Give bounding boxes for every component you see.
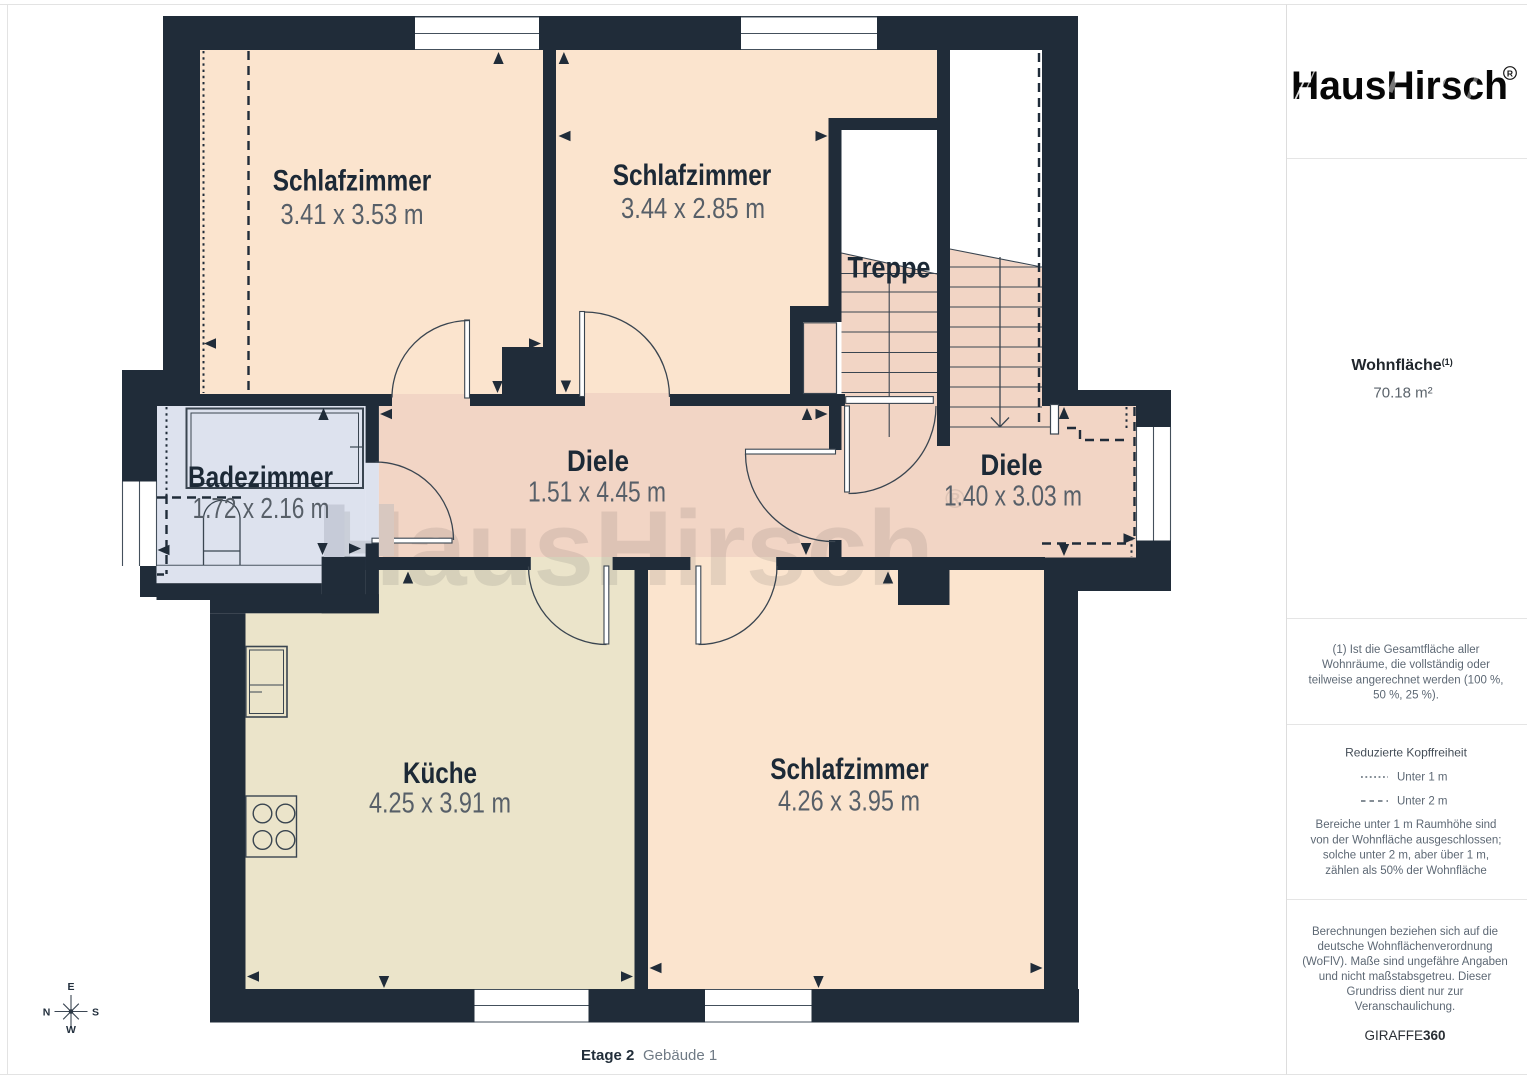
svg-text:Gebäude 1: Gebäude 1 bbox=[643, 1047, 717, 1064]
svg-text:50 %, 25 %).: 50 %, 25 %). bbox=[1373, 690, 1439, 702]
svg-text:und nicht maßstabsgetreu. Dies: und nicht maßstabsgetreu. Dieser bbox=[1319, 971, 1492, 983]
svg-text:W: W bbox=[66, 1024, 76, 1036]
svg-text:Reduzierte Kopffreiheit: Reduzierte Kopffreiheit bbox=[1345, 746, 1468, 760]
svg-text:1.40 x 3.03 m: 1.40 x 3.03 m bbox=[944, 481, 1082, 513]
svg-text:von der Wohnfläche ausgeschlos: von der Wohnfläche ausgeschlossen; bbox=[1311, 834, 1502, 846]
svg-text:Küche: Küche bbox=[403, 757, 477, 790]
svg-text:Veranschaulichung.: Veranschaulichung. bbox=[1355, 1001, 1455, 1013]
svg-text:Schlafzimmer: Schlafzimmer bbox=[273, 165, 432, 198]
svg-text:4.25 x 3.91 m: 4.25 x 3.91 m bbox=[369, 788, 511, 820]
svg-text:teilweise angerechnet werden (: teilweise angerechnet werden (100 %, bbox=[1309, 674, 1504, 686]
svg-text:N: N bbox=[43, 1007, 51, 1019]
svg-text:Diele: Diele bbox=[567, 445, 629, 478]
svg-text:Diele: Diele bbox=[981, 449, 1043, 482]
svg-text:Wohnräume, die vollständig ode: Wohnräume, die vollständig oder bbox=[1322, 659, 1490, 671]
svg-text:70.18 m²: 70.18 m² bbox=[1373, 385, 1432, 402]
svg-text:zählen als 50% der Wohnfläche: zählen als 50% der Wohnfläche bbox=[1325, 865, 1487, 877]
svg-text:GIRAFFE360: GIRAFFE360 bbox=[1364, 1028, 1445, 1043]
svg-text:R: R bbox=[1507, 69, 1513, 79]
svg-text:Bereiche unter 1 m Raumhöhe si: Bereiche unter 1 m Raumhöhe sind bbox=[1316, 819, 1497, 831]
svg-text:Schlafzimmer: Schlafzimmer bbox=[613, 159, 772, 192]
svg-text:Badezimmer: Badezimmer bbox=[188, 461, 333, 494]
svg-text:Wohnfläche(1): Wohnfläche(1) bbox=[1351, 357, 1452, 374]
svg-text:deutsche Wohnflächenverordnung: deutsche Wohnflächenverordnung bbox=[1318, 941, 1493, 953]
svg-text:(WoFlV). Maße sind ungefähre A: (WoFlV). Maße sind ungefähre Angaben bbox=[1302, 956, 1508, 968]
svg-text:1.51 x 4.45 m: 1.51 x 4.45 m bbox=[528, 477, 666, 509]
svg-text:1.72 x 2.16 m: 1.72 x 2.16 m bbox=[193, 493, 330, 525]
svg-text:Schlafzimmer: Schlafzimmer bbox=[770, 753, 929, 786]
svg-text:Grundriss dient nur zur: Grundriss dient nur zur bbox=[1347, 986, 1464, 998]
svg-text:Berechnungen beziehen sich auf: Berechnungen beziehen sich auf die bbox=[1312, 926, 1498, 938]
svg-text:solche unter 2 m, aber über 1: solche unter 2 m, aber über 1 m, bbox=[1323, 850, 1489, 862]
svg-text:Etage 2: Etage 2 bbox=[581, 1047, 634, 1064]
svg-text:E: E bbox=[67, 981, 74, 993]
svg-text:(1) Ist die Gesamtfläche aller: (1) Ist die Gesamtfläche aller bbox=[1332, 644, 1479, 656]
svg-text:Unter 1 m: Unter 1 m bbox=[1397, 772, 1448, 784]
svg-text:Treppe: Treppe bbox=[848, 252, 931, 285]
svg-text:3.41 x 3.53 m: 3.41 x 3.53 m bbox=[281, 199, 424, 231]
svg-text:4.26 x 3.95 m: 4.26 x 3.95 m bbox=[778, 786, 920, 818]
svg-text:S: S bbox=[92, 1007, 99, 1019]
svg-text:3.44 x 2.85 m: 3.44 x 2.85 m bbox=[621, 193, 765, 225]
svg-text:Unter 2 m: Unter 2 m bbox=[1397, 796, 1448, 808]
